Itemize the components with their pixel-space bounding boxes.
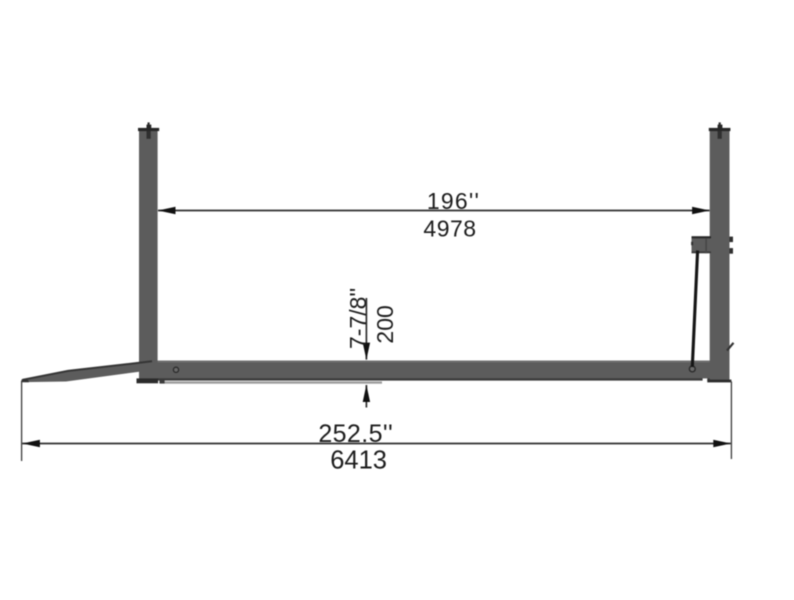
svg-text:196'': 196'' [427,188,480,214]
svg-text:6413: 6413 [330,446,387,474]
svg-text:7-7/8'': 7-7/8'' [345,288,371,349]
svg-text:252.5'': 252.5'' [318,420,393,448]
svg-text:4978: 4978 [423,216,476,242]
svg-text:200: 200 [372,305,398,343]
